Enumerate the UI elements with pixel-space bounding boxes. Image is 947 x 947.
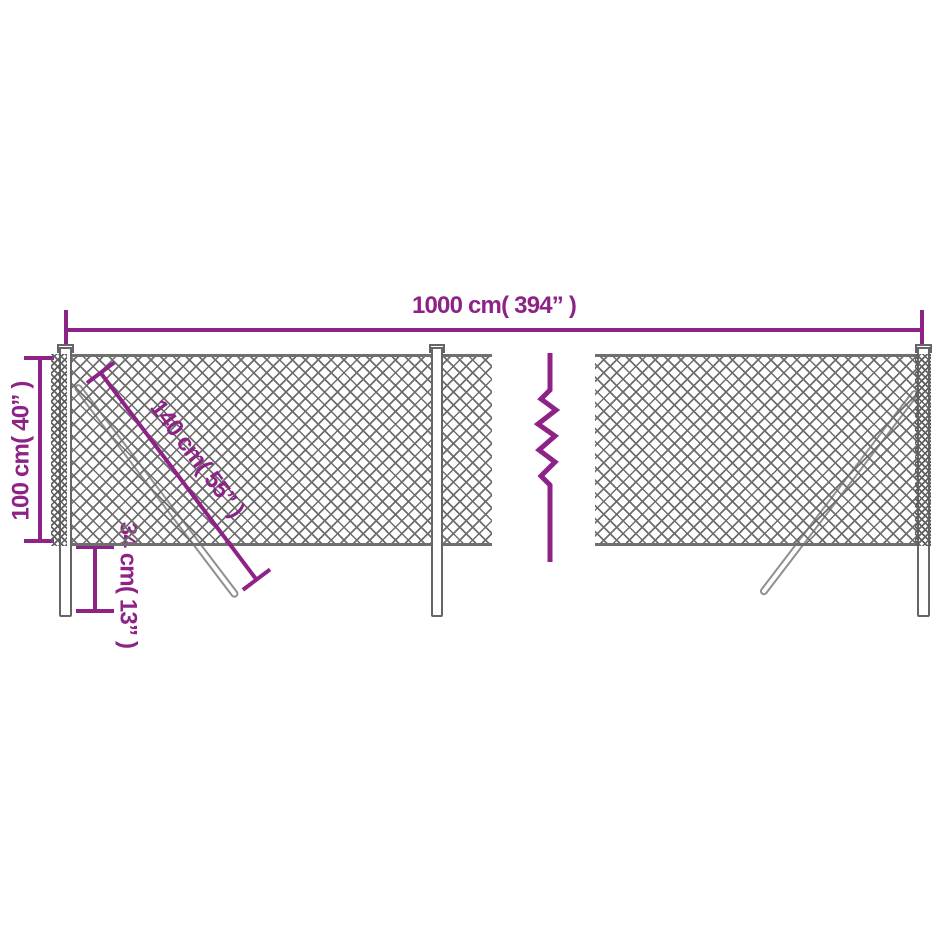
brace-length-end-tick xyxy=(242,568,272,592)
chain-link-mesh-left-panel xyxy=(65,354,492,546)
height-dimension-label: 100 cm( 40” ) xyxy=(8,381,33,520)
mesh-edge-braid-right xyxy=(915,354,931,546)
width-dimension-label: 1000 cm( 394” ) xyxy=(66,293,922,318)
ground-depth-bottom-tick xyxy=(76,609,114,613)
mesh-edge-braid-left xyxy=(51,354,67,546)
fence-post-middle xyxy=(431,347,443,617)
height-dimension-bottom-tick xyxy=(24,539,54,543)
ground-depth-line xyxy=(93,547,97,613)
width-dimension-line xyxy=(66,328,922,332)
break-symbol-icon xyxy=(530,350,570,565)
chain-link-mesh-right-panel xyxy=(595,354,925,546)
height-dimension-line xyxy=(38,358,42,543)
fence-dimension-diagram: 1000 cm( 394” ) 100 cm( 40” ) 34 cm( 13”… xyxy=(0,0,947,947)
